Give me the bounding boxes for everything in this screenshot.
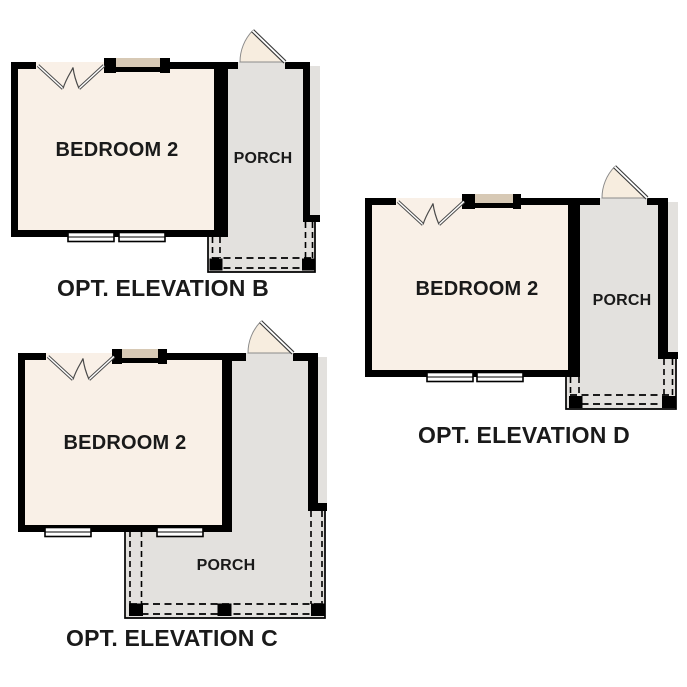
window-icon [45,528,91,537]
door-swing-icon [248,322,293,353]
floor-plan-elevation-b: BEDROOM 2 PORCH OPT. ELEVATION B [15,31,321,301]
floor-plans-page: BEDROOM 2 PORCH OPT. ELEVATION B [0,0,687,687]
floor-plan-elevation-d: BEDROOM 2 PORCH OPT. ELEVATION D [369,167,679,448]
room-label: BEDROOM 2 [64,432,187,454]
window-icon [119,233,165,242]
wall-opening [396,198,464,205]
room-label: BEDROOM 2 [56,139,179,161]
door-swing-icon [240,31,285,62]
window-accent [462,194,521,209]
window-icon [477,373,523,382]
wall-opening [36,62,106,69]
window-icon [427,373,473,382]
caption: OPT. ELEVATION B [57,275,269,301]
porch-label: PORCH [197,557,256,574]
room-label: BEDROOM 2 [416,278,539,300]
porch-label: PORCH [593,292,652,309]
window-icon [157,528,203,537]
window-accent [112,349,167,364]
caption: OPT. ELEVATION D [418,422,630,448]
porch-label: PORCH [234,150,293,167]
floor-plans-canvas: BEDROOM 2 PORCH OPT. ELEVATION B [0,0,687,687]
caption: OPT. ELEVATION C [66,625,278,651]
window-icon [68,233,114,242]
wall-opening [46,353,114,361]
door-swing-icon [602,167,647,198]
floor-plan-elevation-c: BEDROOM 2 PORCH OPT. ELEVATION C [22,322,328,651]
window-accent [104,58,170,73]
